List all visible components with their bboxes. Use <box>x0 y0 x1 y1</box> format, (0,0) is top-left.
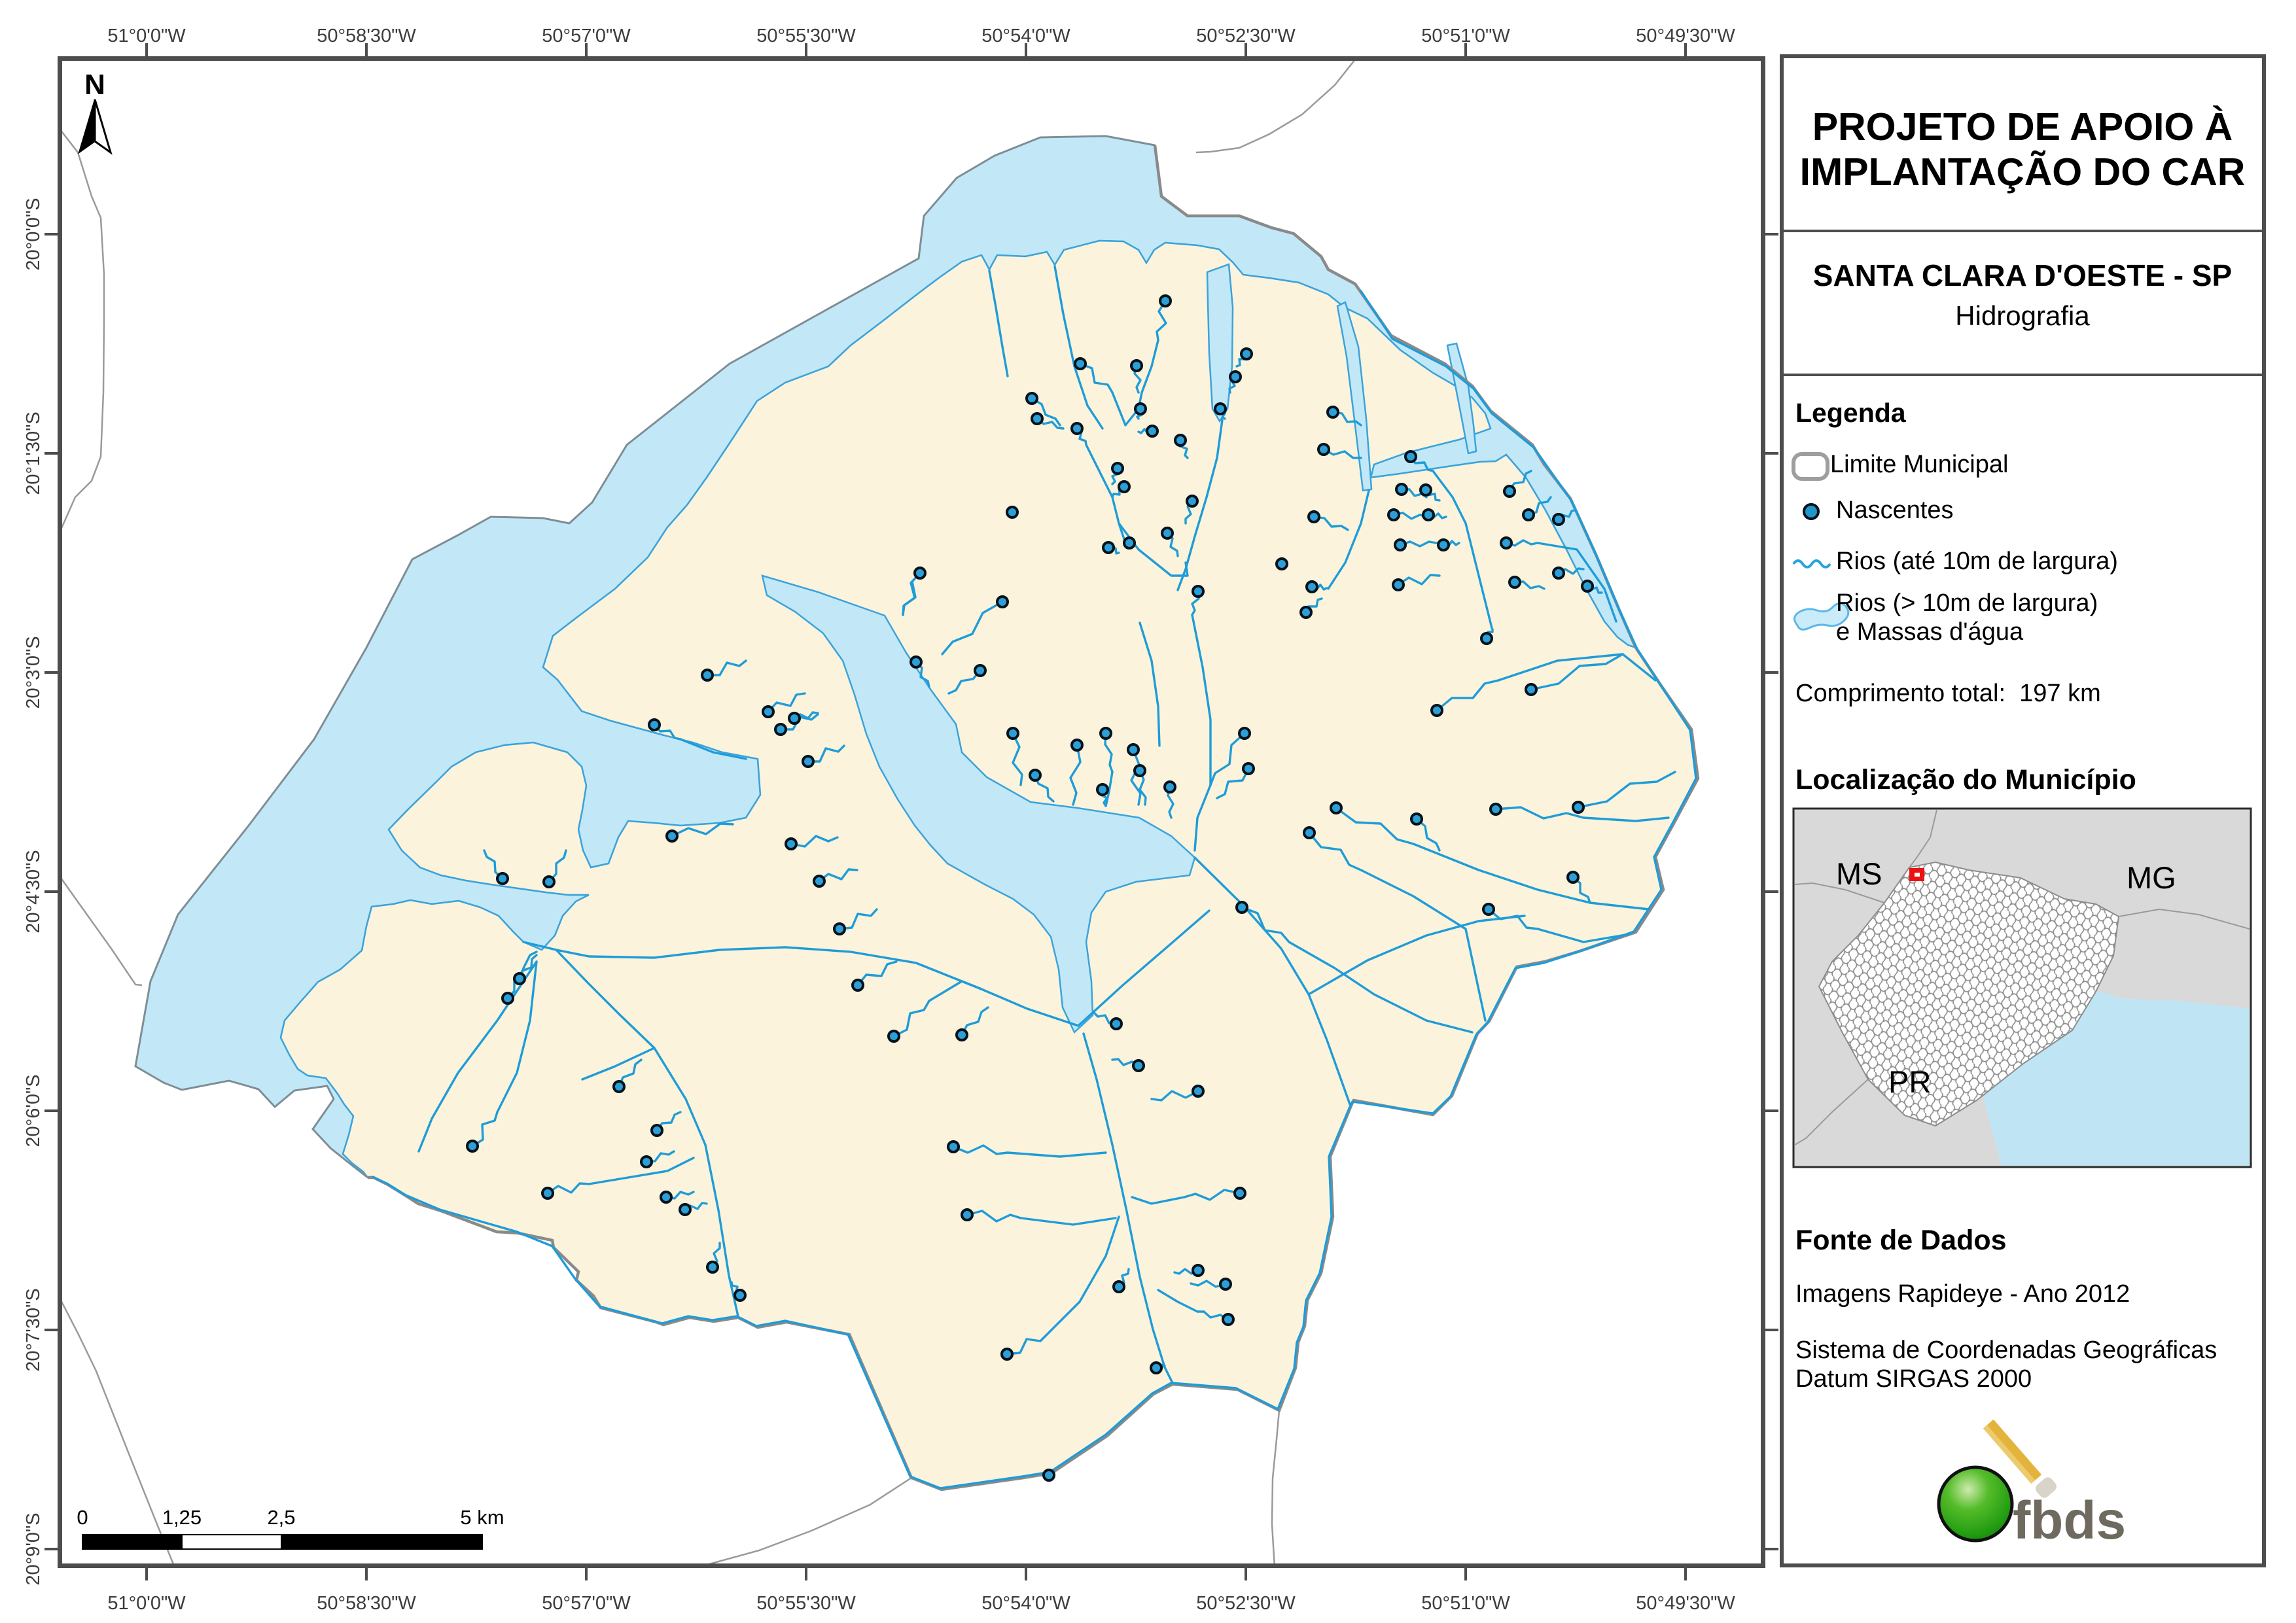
svg-text:50°52'30"W: 50°52'30"W <box>1196 1593 1296 1614</box>
svg-text:50°51'0"W: 50°51'0"W <box>1421 26 1510 46</box>
svg-text:20°1'30"S: 20°1'30"S <box>23 411 44 495</box>
svg-text:Datum SIRGAS 2000: Datum SIRGAS 2000 <box>1795 1365 2032 1393</box>
svg-text:50°51'0"W: 50°51'0"W <box>1421 1593 1510 1614</box>
svg-text:50°52'30"W: 50°52'30"W <box>1196 26 1296 46</box>
svg-text:PR: PR <box>1888 1064 1931 1099</box>
svg-text:N: N <box>84 69 105 101</box>
svg-text:PROJETO DE APOIO À: PROJETO DE APOIO À <box>1812 105 2233 148</box>
svg-text:50°57'0"W: 50°57'0"W <box>542 1593 631 1614</box>
svg-text:50°57'0"W: 50°57'0"W <box>542 26 631 46</box>
svg-text:50°55'30"W: 50°55'30"W <box>756 1593 856 1614</box>
svg-text:50°54'0"W: 50°54'0"W <box>981 26 1070 46</box>
svg-text:SANTA CLARA D'OESTE - SP: SANTA CLARA D'OESTE - SP <box>1813 258 2232 292</box>
svg-text:50°58'30"W: 50°58'30"W <box>317 1593 416 1614</box>
svg-text:Localização do Município: Localização do Município <box>1795 764 2136 795</box>
svg-text:50°54'0"W: 50°54'0"W <box>981 1593 1070 1614</box>
svg-text:fbds: fbds <box>2013 1491 2126 1550</box>
svg-text:20°3'0"S: 20°3'0"S <box>23 636 44 708</box>
svg-text:51°0'0"W: 51°0'0"W <box>107 1593 186 1614</box>
svg-text:50°49'30"W: 50°49'30"W <box>1636 1593 1735 1614</box>
svg-text:50°55'30"W: 50°55'30"W <box>756 26 856 46</box>
svg-text:2,5: 2,5 <box>267 1506 295 1529</box>
svg-text:e Massas d'água: e Massas d'água <box>1836 618 2024 646</box>
svg-text:Comprimento total: 197 km: Comprimento total: 197 km <box>1795 680 2101 707</box>
svg-text:MS: MS <box>1836 856 1882 891</box>
svg-text:Imagens Rapideye - Ano 2012: Imagens Rapideye - Ano 2012 <box>1795 1280 2130 1308</box>
svg-text:51°0'0"W: 51°0'0"W <box>107 26 186 46</box>
svg-text:20°6'0"S: 20°6'0"S <box>23 1074 44 1147</box>
svg-text:Hidrografia: Hidrografia <box>1955 300 2090 331</box>
svg-text:Legenda: Legenda <box>1795 398 1907 428</box>
svg-text:5 km: 5 km <box>460 1506 504 1529</box>
svg-text:50°58'30"W: 50°58'30"W <box>317 26 416 46</box>
svg-text:1,25: 1,25 <box>162 1506 202 1529</box>
svg-text:IMPLANTAÇÃO DO CAR: IMPLANTAÇÃO DO CAR <box>1800 150 2246 194</box>
svg-text:20°9'0"S: 20°9'0"S <box>23 1512 44 1585</box>
svg-text:MG: MG <box>2127 860 2176 895</box>
svg-text:50°49'30"W: 50°49'30"W <box>1636 26 1735 46</box>
svg-text:20°4'30"S: 20°4'30"S <box>23 850 44 933</box>
svg-text:Limite Municipal: Limite Municipal <box>1830 451 2008 478</box>
svg-text:Rios (até 10m de largura): Rios (até 10m de largura) <box>1836 548 2118 575</box>
svg-text:20°0'0"S: 20°0'0"S <box>23 198 44 270</box>
svg-text:Rios (> 10m de largura): Rios (> 10m de largura) <box>1836 589 2098 617</box>
svg-text:0: 0 <box>77 1506 88 1529</box>
svg-text:Nascentes: Nascentes <box>1836 497 1954 524</box>
svg-text:20°7'30"S: 20°7'30"S <box>23 1288 44 1371</box>
svg-text:Sistema de Coordenadas Geográf: Sistema de Coordenadas Geográficas <box>1795 1336 2217 1364</box>
svg-text:Fonte de Dados: Fonte de Dados <box>1795 1225 2007 1256</box>
